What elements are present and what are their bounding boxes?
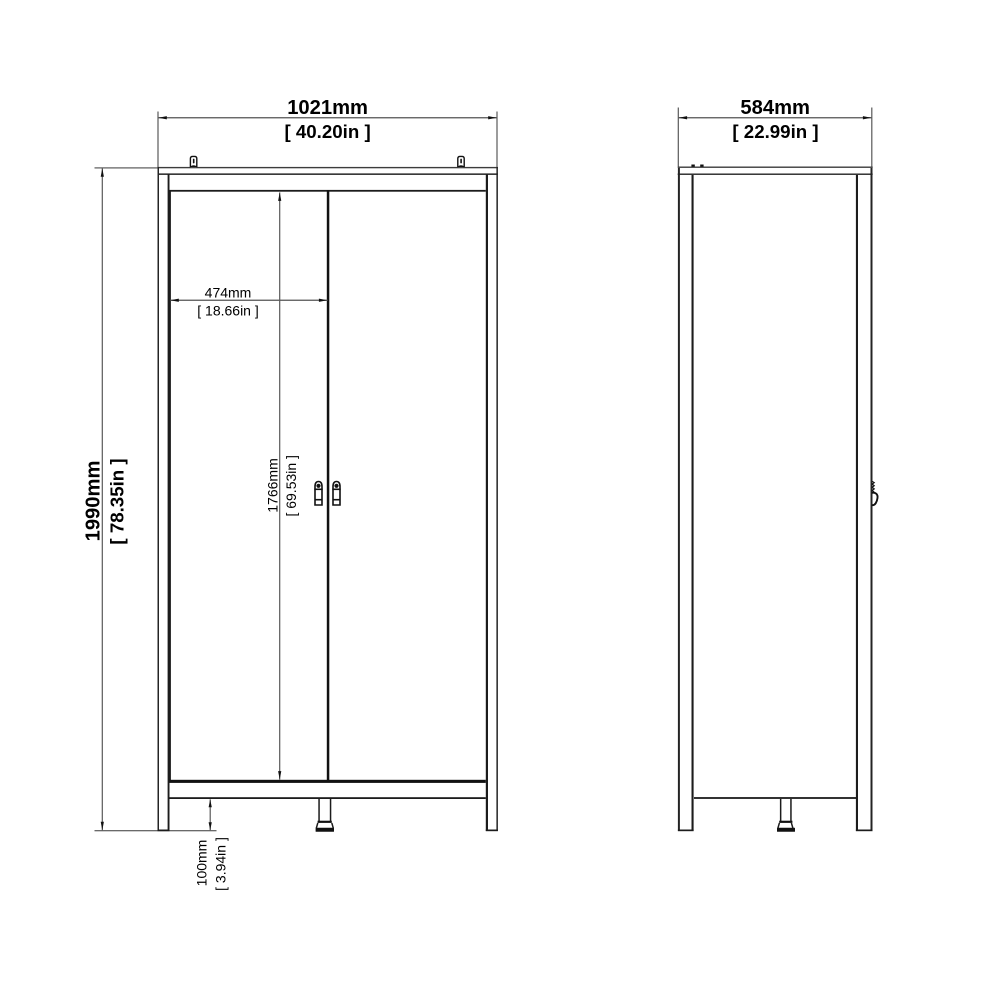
svg-text:100mm: 100mm (193, 840, 209, 887)
svg-text:1990mm: 1990mm (83, 461, 105, 542)
svg-text:1766mm: 1766mm (265, 458, 281, 512)
svg-text:[ 22.99in ]: [ 22.99in ] (732, 121, 818, 142)
svg-text:[ 3.94in ]: [ 3.94in ] (212, 837, 228, 891)
svg-text:584mm: 584mm (740, 97, 810, 119)
svg-text:[ 40.20in ]: [ 40.20in ] (284, 121, 370, 142)
svg-text:1021mm: 1021mm (287, 97, 368, 119)
svg-text:[ 69.53in ]: [ 69.53in ] (283, 455, 299, 517)
svg-text:474mm: 474mm (205, 284, 252, 300)
svg-text:[ 18.66in ]: [ 18.66in ] (197, 302, 259, 318)
svg-text:[ 78.35in ]: [ 78.35in ] (106, 458, 127, 544)
